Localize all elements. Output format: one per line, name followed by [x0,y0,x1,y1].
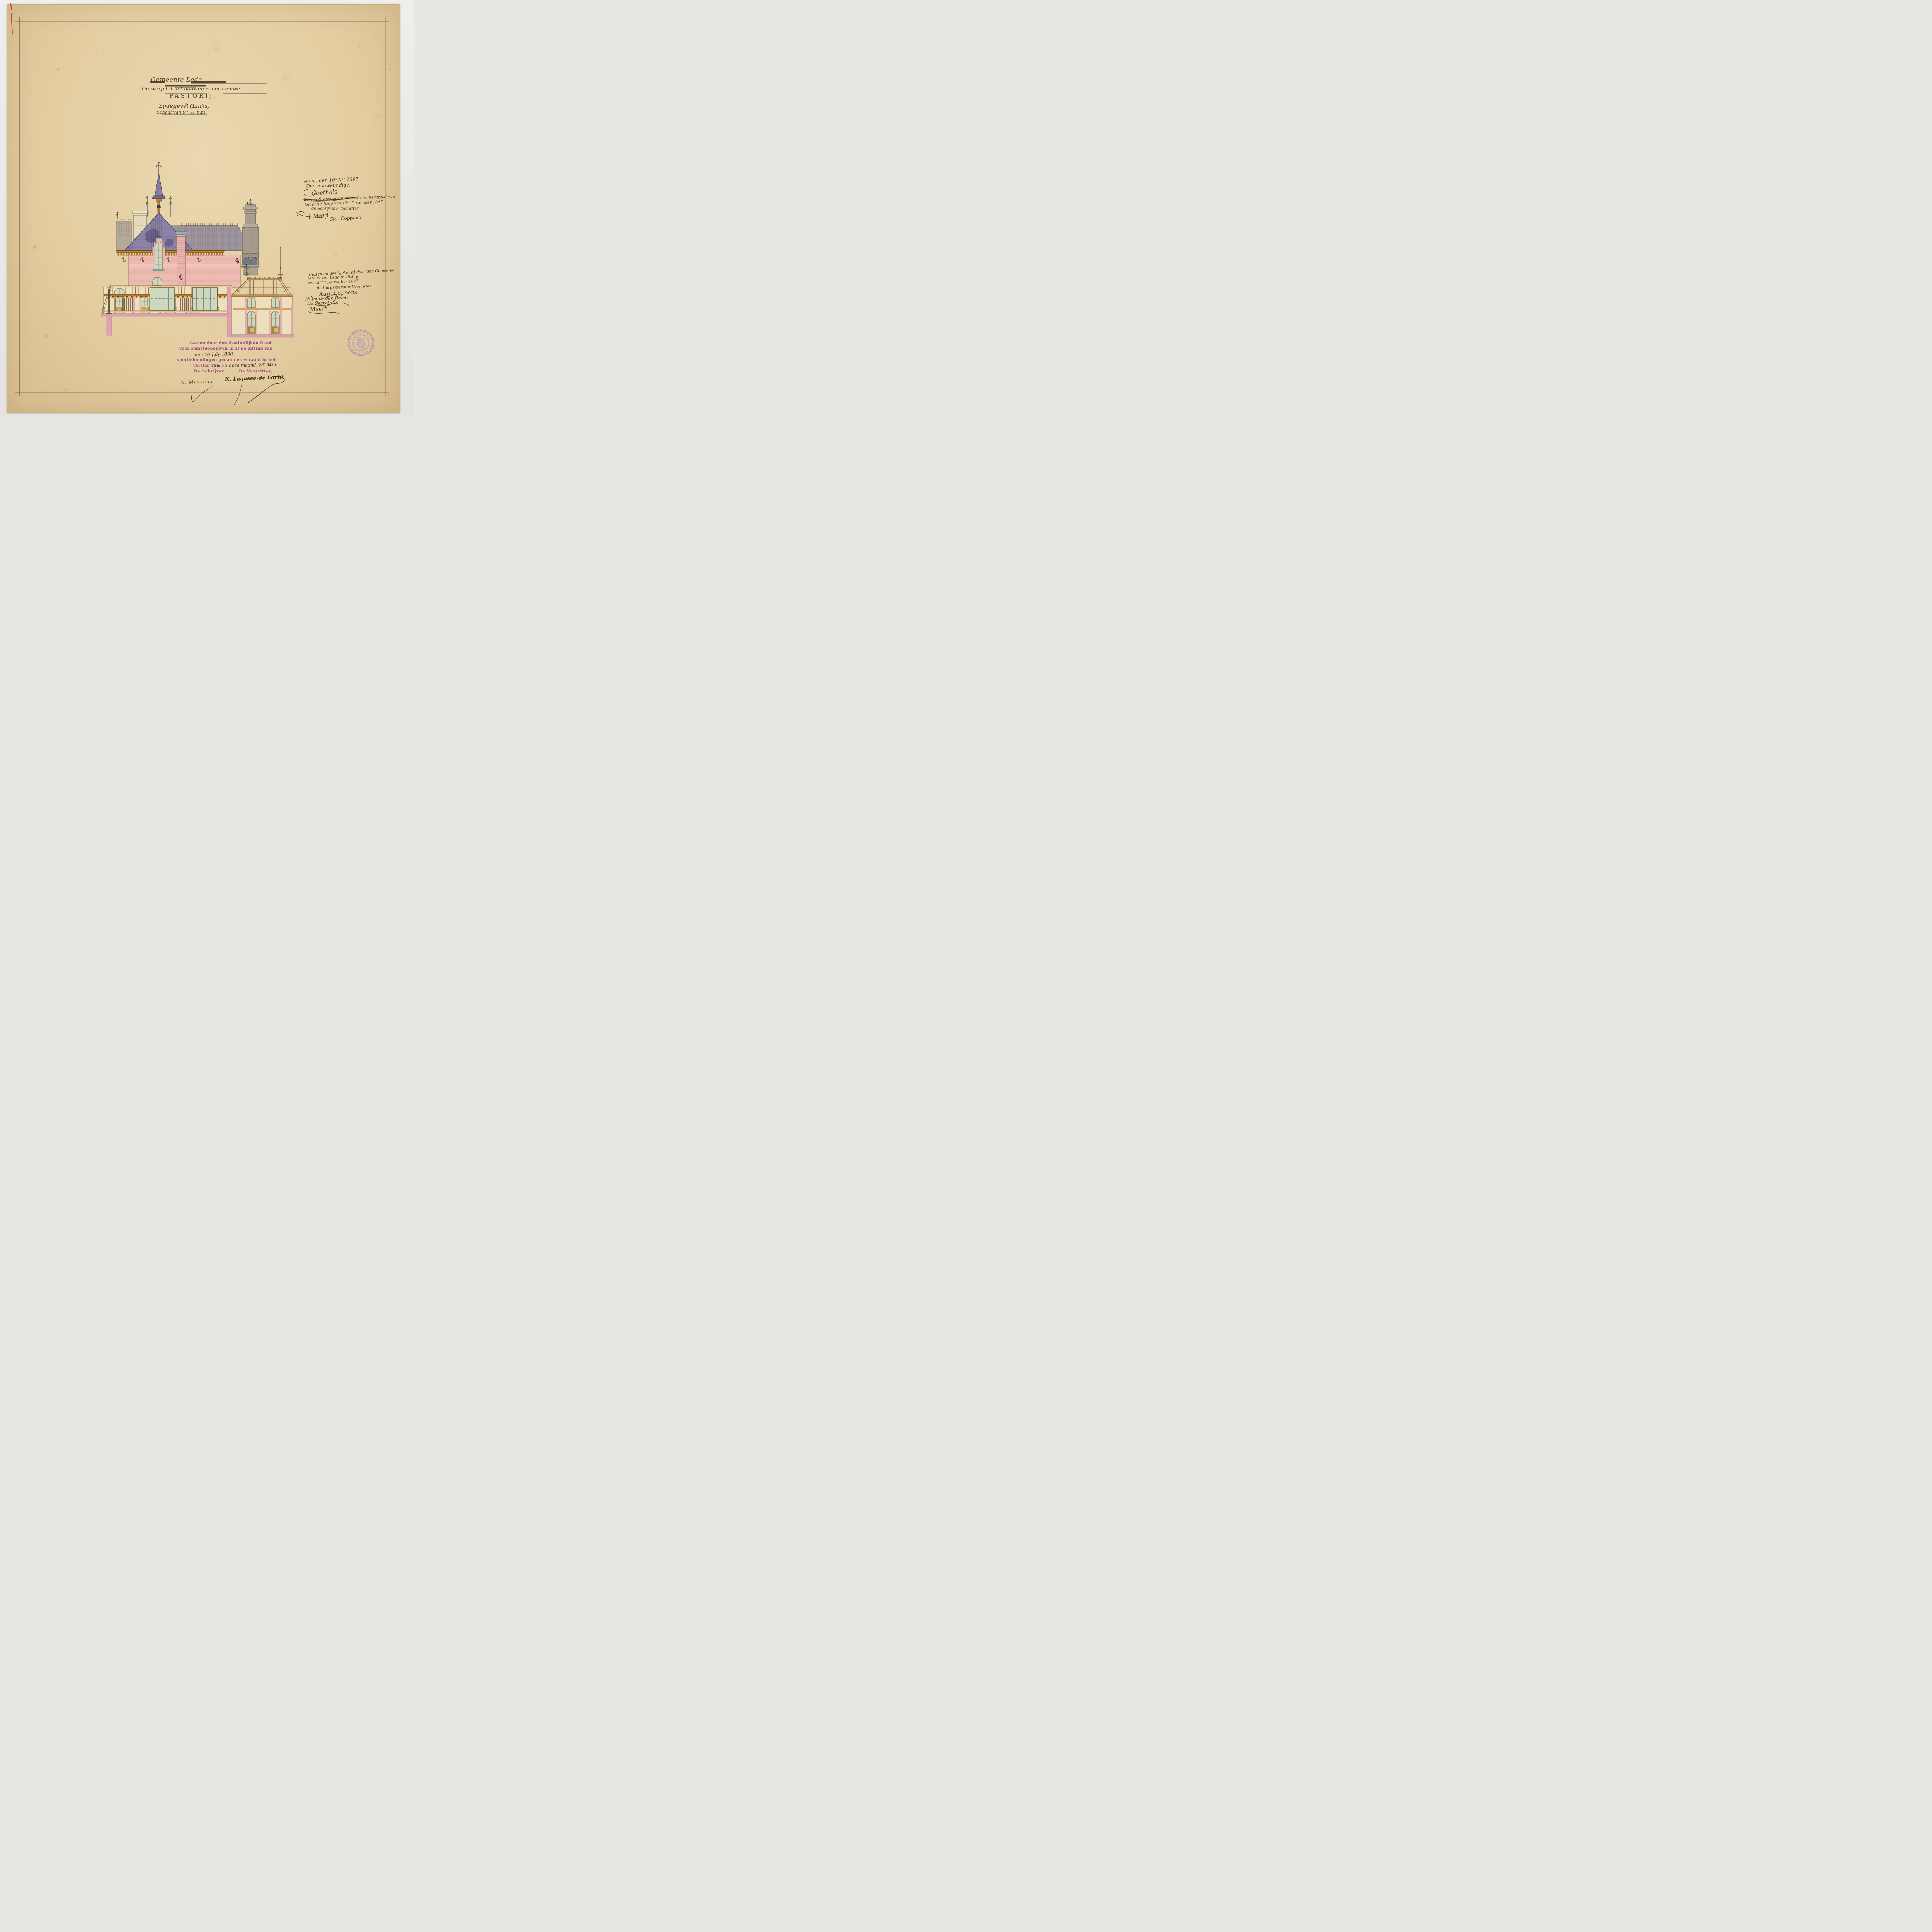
red-archive-marks [11,3,12,34]
title-gemeente: Gemeente Lede. [151,77,204,83]
note-secretaris: De Secretaris [307,301,338,306]
section-pier [227,287,231,337]
tower-chimney [242,199,259,255]
lightning-rod-icon [170,196,172,217]
lightning-rod-icon [280,247,281,267]
left-grey-roof [116,212,131,251]
royal-role-voorzitter: De Voorzitter, [239,369,272,374]
role-schrijver: de Schrijver [311,207,335,211]
title-schaal: Schaal van 0ᵐ.01 p.m. [156,110,206,115]
annex-lower-window [247,311,255,334]
stamp-coat-of-arms [355,336,367,350]
annex-roof-frame [232,278,291,295]
finial-icon [116,212,119,219]
signature-secretaris: Meert [310,306,327,313]
veranda-trellis [103,286,232,314]
note-bouwkundige: Den Bouwkundige, [306,182,350,188]
royal-line-1: Gezien door den Koninklijken Raad [190,342,272,345]
title-ontwerp: Ontwerp tot het bouwen eener nieuwe [142,87,240,92]
annex-upper-window [247,297,255,308]
tower-arches [241,253,259,275]
chimney-crest-icon [247,199,254,205]
dormer-window [155,242,163,269]
royal-handwritten-date: den 16 July 1898. [195,352,234,357]
building-elevation [100,162,295,338]
royal-line-3: voorbehoudingen gedaan en veraald in het [177,358,276,362]
glazed-panel [150,288,175,311]
spire [152,162,165,213]
title-zijdegevel: Zijdegevel (Links) [159,104,210,109]
finial-icon [279,267,283,278]
annex-lower-window [271,311,279,334]
glazed-panel [192,288,217,311]
wall-anchor-icon [122,257,125,262]
role-voorzitter: de Voorzitter [333,207,359,211]
title-pastorij: PASTORIJ. [169,93,217,99]
annex-upper-window [271,297,279,308]
royal-role-schrijver: De Schrijver, [194,369,225,374]
chimney-breast [175,232,187,287]
royal-handwritten-report: den 22 deze maand, Nº 5406. [212,362,279,368]
signature-massaux: A. Massaux [181,379,213,385]
royal-line-2: voor Kunstgebouwen in zijne zitting van [179,347,272,351]
scanned-drawing-canvas: GEMEENTE-BESTUUR VAN LEDE ✶ OOST-VLAANDE… [0,0,414,415]
